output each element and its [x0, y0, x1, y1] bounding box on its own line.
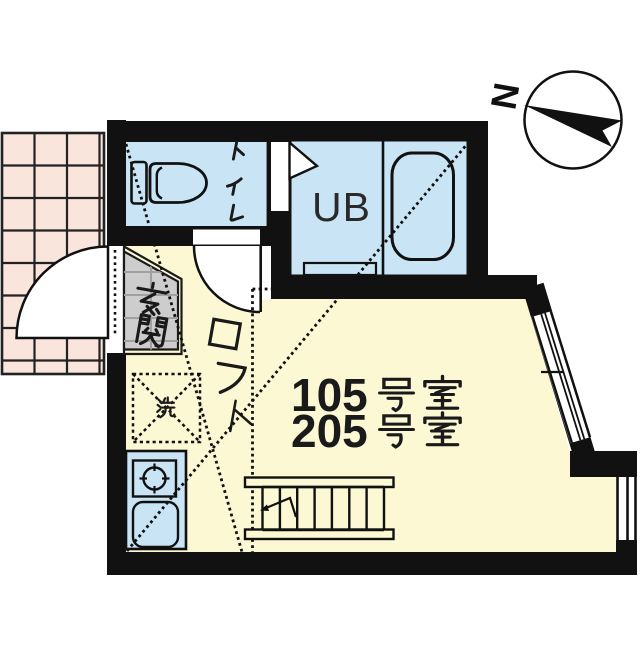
svg-text:UB: UB [312, 184, 371, 230]
svg-text:205: 205 [291, 405, 368, 457]
